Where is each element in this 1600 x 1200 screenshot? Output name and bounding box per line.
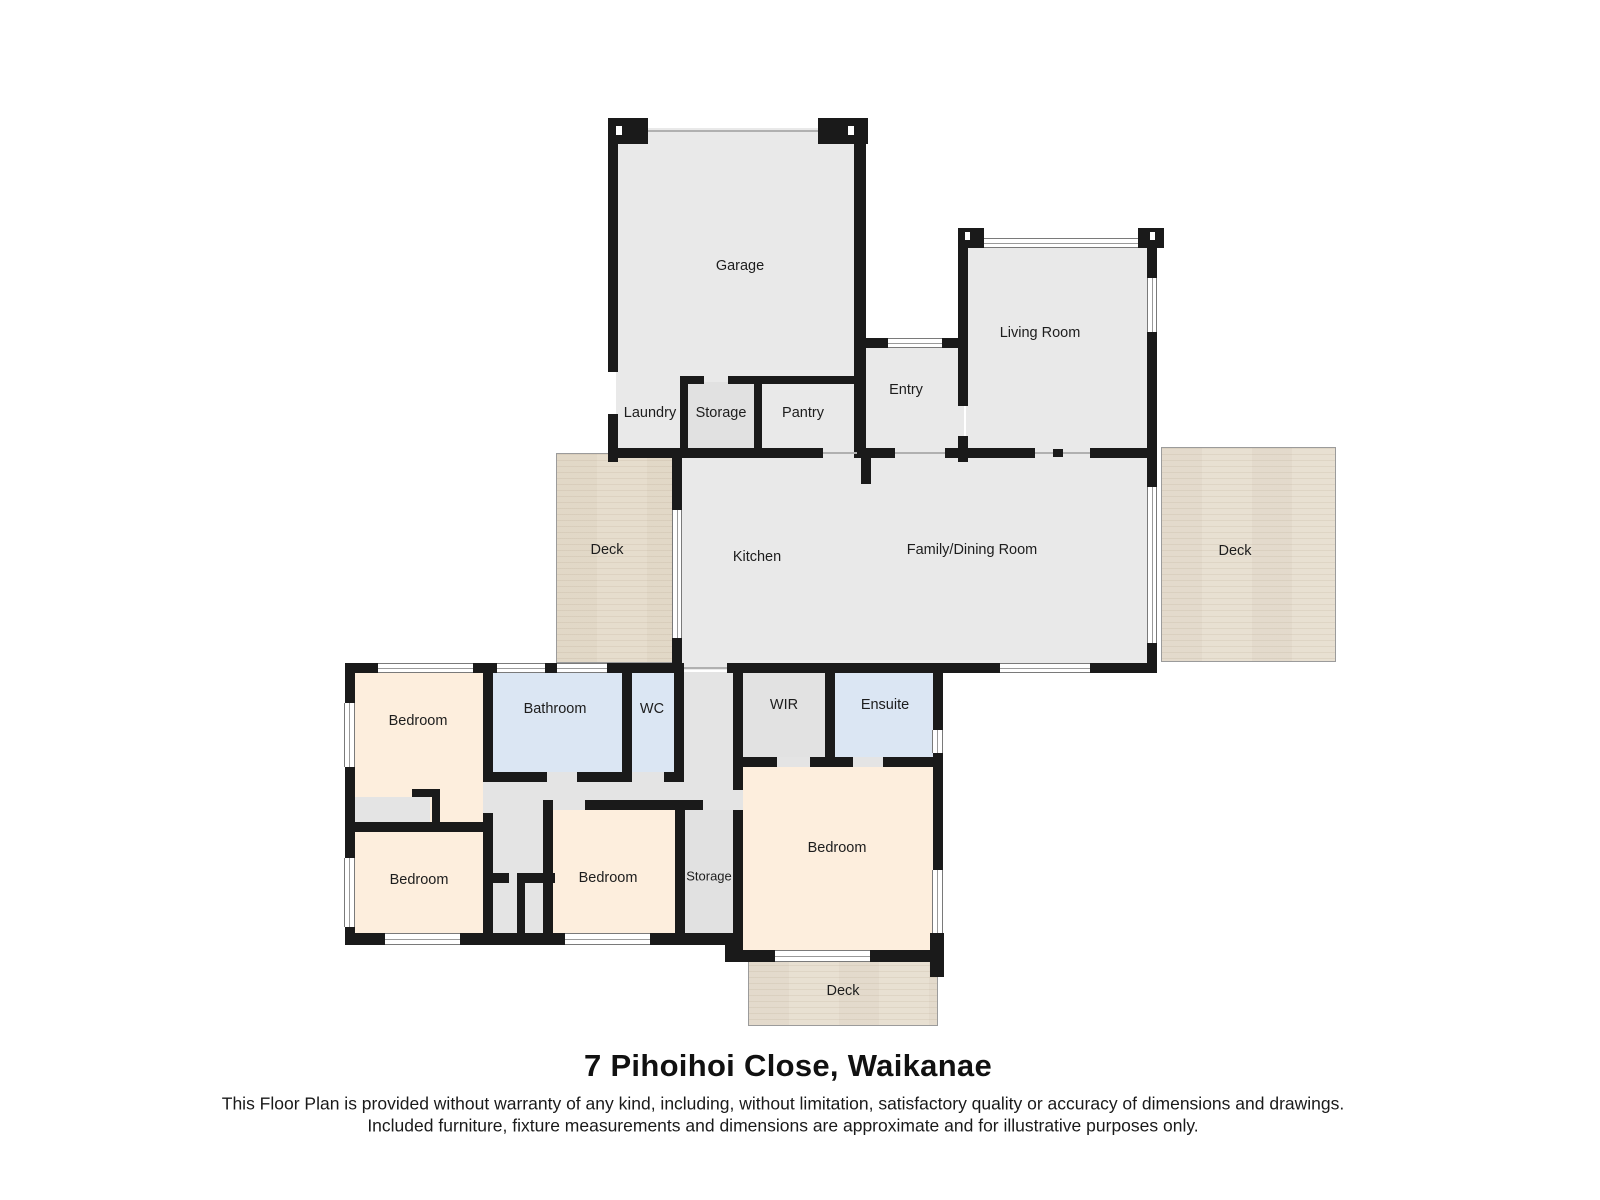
wall-wing-left-a [345, 663, 355, 703]
wall-garage-left-upper [608, 118, 618, 372]
room-label-storage-upper: Storage [696, 405, 747, 421]
disclaimer-line-1: This Floor Plan is provided without warr… [222, 1094, 1344, 1115]
wall-wing-top-e [727, 663, 1000, 673]
room-label-ensuite: Ensuite [861, 697, 909, 713]
wall-band-entry-left [857, 448, 895, 458]
room-label-bedroom-3: Bedroom [579, 870, 638, 886]
opening-entry-family [895, 452, 945, 454]
wc-floor [632, 672, 674, 772]
living-room-right-window [1147, 278, 1157, 332]
wall-bedroom-2-right-lower [483, 873, 493, 945]
garage-door-line [648, 130, 818, 132]
wall-living-left-upper [958, 248, 968, 348]
wall-storage-upper-left [680, 376, 688, 454]
bedroom-1-top-window [378, 663, 473, 673]
wall-wir-left [733, 663, 743, 790]
wall-wir-bottom [733, 757, 777, 767]
wall-wir-ensuite-divider [825, 663, 835, 757]
ensuite-floor [835, 672, 935, 757]
family-deck-slider [1147, 487, 1157, 643]
room-label-laundry: Laundry [624, 405, 676, 421]
bedroom-master-floor [743, 767, 935, 955]
wall-bedroom-1-right [483, 663, 493, 772]
wall-entry-top-left [866, 338, 888, 348]
wall-bedroom-1-closet-right [432, 789, 440, 830]
wall-band-living-bottom-left [945, 448, 1035, 458]
room-label-bedroom-master: Bedroom [808, 840, 867, 856]
room-label-wir: WIR [770, 697, 798, 713]
wall-ensuite-bottom-right [883, 757, 943, 767]
room-label-wc: WC [640, 701, 664, 717]
wall-bedroom-3-top-stub [543, 800, 553, 810]
wall-living-right-upper [1147, 248, 1157, 278]
wall-bedroom-3-left [543, 810, 553, 935]
room-label-entry: Entry [889, 382, 923, 398]
page-title: 7 Pihoihoi Close, Waikanae [584, 1048, 992, 1084]
garage-post-notch-left [616, 126, 622, 135]
deck-left-floor [556, 453, 674, 663]
wall-bathroom-bottom-a [483, 772, 547, 782]
wall-bedroom-master-left [733, 810, 743, 950]
wall-bathroom-wc-divider [622, 663, 632, 772]
room-label-storage-lower: Storage [686, 869, 732, 884]
wall-garage-right [854, 118, 866, 458]
wall-bathroom-bottom-b [577, 772, 632, 782]
wall-storage-upper-top-b [728, 376, 762, 384]
wall-living-left-mid [958, 338, 968, 406]
wall-storage-upper-right [754, 376, 762, 454]
room-label-bathroom: Bathroom [524, 701, 587, 717]
wall-wing-top-d [607, 663, 680, 673]
room-label-bedroom-2: Bedroom [390, 872, 449, 888]
wall-bedroom-master-bottom-right [870, 950, 938, 962]
wall-stub-kitchen-top [861, 458, 871, 484]
kitchen-deck-slider [672, 510, 682, 638]
room-label-deck-right: Deck [1218, 543, 1251, 559]
bedroom-3-bottom-window [565, 933, 650, 945]
wall-band-laundry-bottom [608, 448, 823, 458]
wall-bedroom-1-bottom [345, 822, 483, 832]
bedroom-master-deck-slider [775, 950, 870, 962]
disclaimer-line-2: Included furniture, fixture measurements… [367, 1116, 1198, 1137]
wall-wir-ensuite-bottom-mid [810, 757, 853, 767]
room-label-garage: Garage [716, 258, 764, 274]
room-label-kitchen: Kitchen [733, 549, 781, 565]
bathroom-window-1 [497, 663, 545, 673]
room-label-deck-left: Deck [590, 542, 623, 558]
wall-bedroom-3-top [585, 800, 675, 810]
wall-wing-right-a [933, 663, 943, 730]
wall-bedroom-2-right-upper [483, 813, 493, 873]
bedroom-2-left-window [344, 858, 355, 927]
wall-wing-bottom-a [345, 933, 385, 945]
room-label-pantry: Pantry [782, 405, 824, 421]
wall-bathroom-bottom-c [664, 772, 684, 782]
wall-garage-post-topleft [608, 118, 648, 144]
bathroom-floor [493, 672, 622, 772]
wall-storage-upper-top-a [680, 376, 704, 384]
room-label-living-room: Living Room [1000, 325, 1081, 341]
opening-hall-entrance [680, 667, 727, 669]
bedroom-1-closet-floor [355, 797, 430, 822]
opening-pantry-kitchen [823, 452, 857, 454]
wall-living-post-topleft [958, 228, 984, 248]
ensuite-right-window [932, 730, 943, 753]
wall-wing-bottom-c [650, 933, 735, 945]
living-post-notch-left [965, 232, 970, 240]
wall-closet-stub-left [483, 873, 509, 883]
wall-pantry-top [762, 376, 854, 384]
wall-bedroom-3-storage-divider [675, 800, 685, 935]
floor-plan-page: Garage Living Room Entry Laundry Storage… [0, 0, 1600, 1200]
wall-wing-left-b [345, 767, 355, 858]
wall-wing-right-b [933, 753, 943, 870]
room-label-bedroom-1: Bedroom [389, 713, 448, 729]
wall-bedroom-master-bottom-left [733, 950, 775, 962]
wall-family-right-upper [1147, 443, 1157, 487]
living-post-notch-right [1150, 232, 1155, 240]
wall-wc-right [674, 663, 684, 772]
bedroom-2-bottom-window [385, 933, 460, 945]
wall-kitchen-left-upper [672, 448, 682, 510]
wall-storage-lower-top [685, 800, 703, 810]
wall-closet-divider [517, 883, 525, 935]
wall-wing-top-c [545, 663, 557, 673]
wall-wing-top-f [1090, 663, 1157, 673]
family-bottom-window [1000, 663, 1090, 673]
entry-floor [864, 344, 964, 454]
opening-dash-marker [1053, 449, 1063, 457]
room-label-deck-bottom: Deck [826, 983, 859, 999]
wall-wing-bottomright-post [930, 933, 944, 977]
bedroom-master-right-window [932, 870, 943, 933]
living-room-floor [966, 244, 1157, 454]
wir-floor [743, 672, 825, 757]
room-label-family-dining: Family/Dining Room [907, 542, 1038, 558]
front-door-window [888, 338, 942, 348]
bathroom-window-2 [557, 663, 607, 673]
bedroom-1-left-window [344, 703, 355, 767]
living-room-top-window [984, 238, 1138, 248]
